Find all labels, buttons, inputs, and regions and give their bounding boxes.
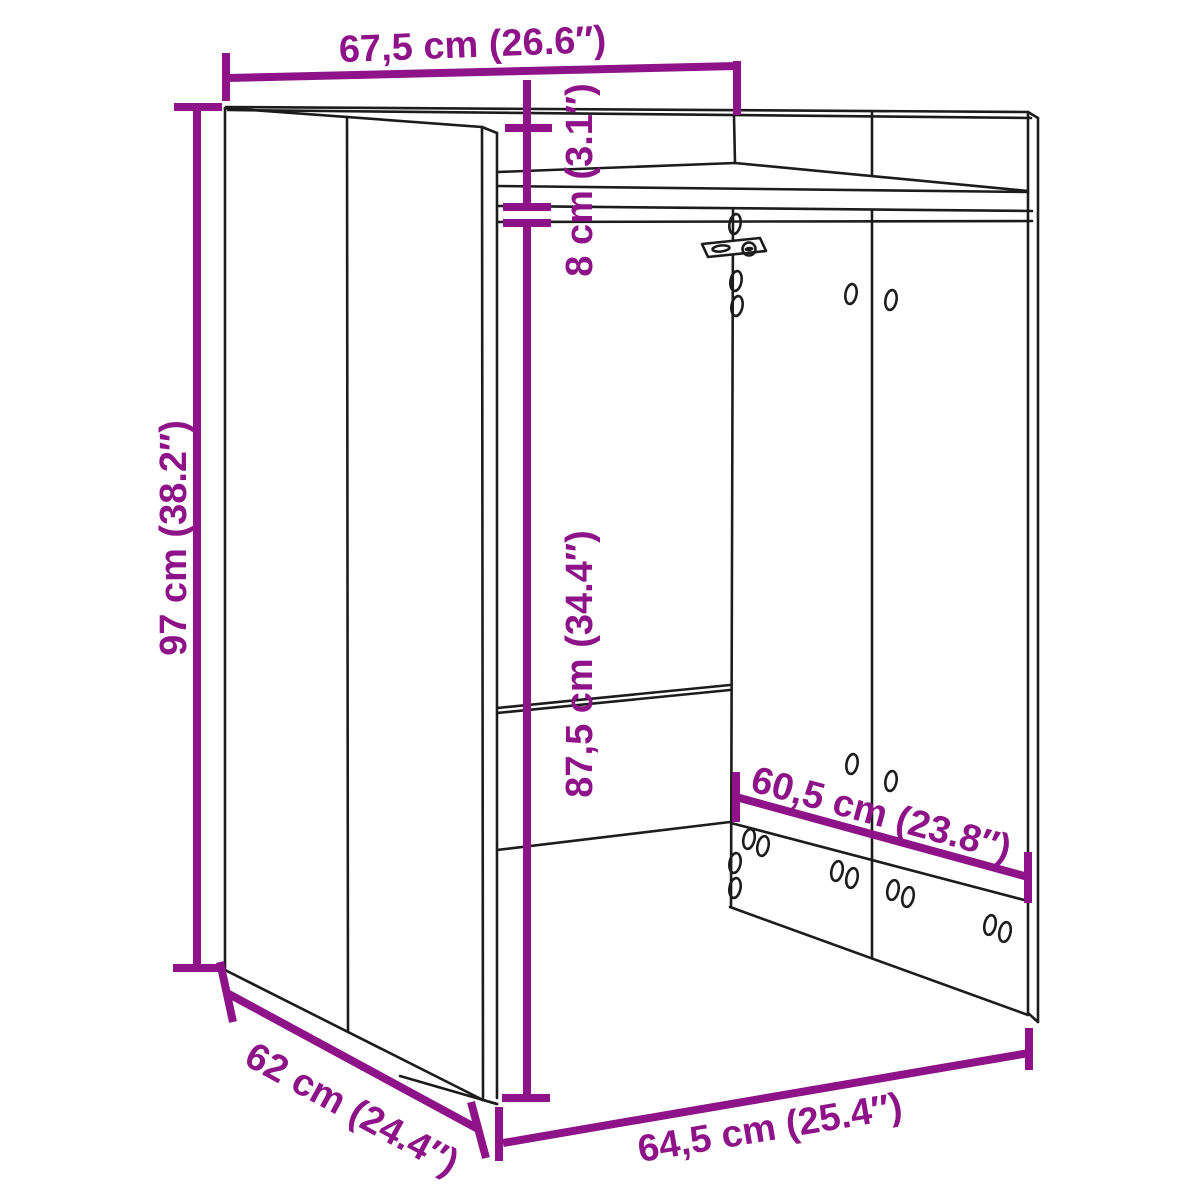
left-wall-joint-upper-b (497, 690, 730, 713)
right-panel-bottom-corner (1028, 1013, 1038, 1022)
diagram-canvas: 67,5 cm (26.6″) 97 cm (38.2″) 8 cm (3.1″… (0, 0, 1200, 1200)
left-panel-top-corner (482, 127, 497, 133)
dim-outer-width-label: 67,5 cm (26.6″) (338, 19, 607, 71)
left-panel-bottom-corner (483, 1100, 497, 1104)
mounting-bracket-icon (702, 238, 766, 257)
left-panel-seam (347, 117, 348, 1032)
dimension-lines (173, 53, 1029, 1161)
dim-top-rail-height-line (503, 80, 552, 207)
dim-inner-height-line (502, 223, 551, 1098)
dimension-diagram: 67,5 cm (26.6″) 97 cm (38.2″) 8 cm (3.1″… (0, 0, 1200, 1200)
dim-inner-height-label: 87,5 cm (34.4″) (559, 530, 601, 797)
left-panel-front-right-edge (482, 127, 483, 1100)
back-corner-seam-upper (734, 116, 735, 163)
back-bottom-panel-bottom-edge (730, 907, 1028, 1015)
shelf-back-edge-right (735, 163, 1028, 191)
dim-outer-height-label: 97 cm (38.2″) (153, 420, 195, 656)
cabinet-line-drawing (225, 107, 1038, 1104)
shelf-back-edge-left (498, 163, 735, 172)
left-wall-joint-lower (497, 822, 730, 850)
dimension-labels: 67,5 cm (26.6″) 97 cm (38.2″) 8 cm (3.1″… (153, 19, 1016, 1184)
dim-top-rail-height-label: 8 cm (3.1″) (559, 83, 601, 277)
left-wall-joint-upper-a (497, 685, 730, 708)
